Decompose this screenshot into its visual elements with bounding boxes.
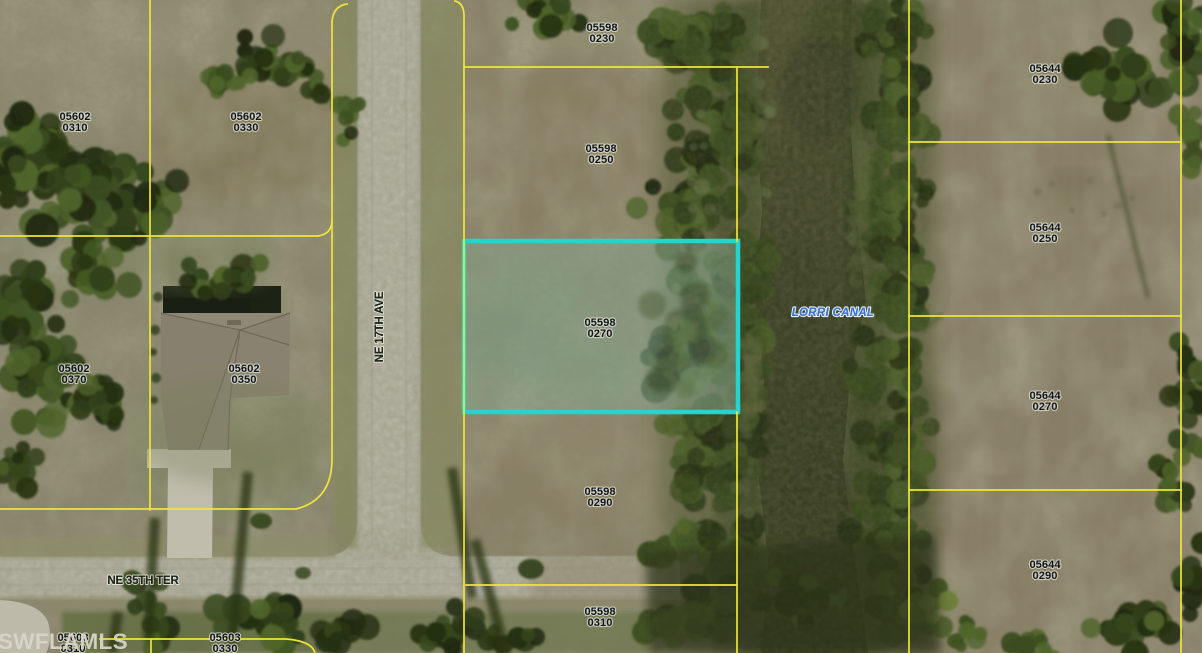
svg-text:055980290: 055980290 xyxy=(584,486,615,509)
svg-text:056020310: 056020310 xyxy=(59,111,90,134)
svg-text:056020370: 056020370 xyxy=(58,363,89,386)
svg-text:056020350: 056020350 xyxy=(228,363,259,386)
svg-text:055980230: 055980230 xyxy=(586,22,617,45)
svg-text:056020330: 056020330 xyxy=(230,111,261,134)
svg-text:056440230: 056440230 xyxy=(1029,63,1061,86)
svg-text:055980310: 055980310 xyxy=(584,606,615,629)
svg-text:056440270: 056440270 xyxy=(1029,390,1061,413)
svg-text:LORRI CANAL: LORRI CANAL xyxy=(792,307,875,319)
svg-text:NE 35TH TER: NE 35TH TER xyxy=(107,575,179,587)
svg-text:056030330: 056030330 xyxy=(209,632,240,653)
svg-text:056440250: 056440250 xyxy=(1029,222,1061,245)
svg-text:055980250: 055980250 xyxy=(585,143,616,166)
svg-text:NE 17TH AVE: NE 17TH AVE xyxy=(374,291,386,362)
svg-text:055980270: 055980270 xyxy=(584,317,615,340)
svg-text:SWFLAMLS: SWFLAMLS xyxy=(0,629,128,653)
svg-text:056440290: 056440290 xyxy=(1029,559,1061,582)
